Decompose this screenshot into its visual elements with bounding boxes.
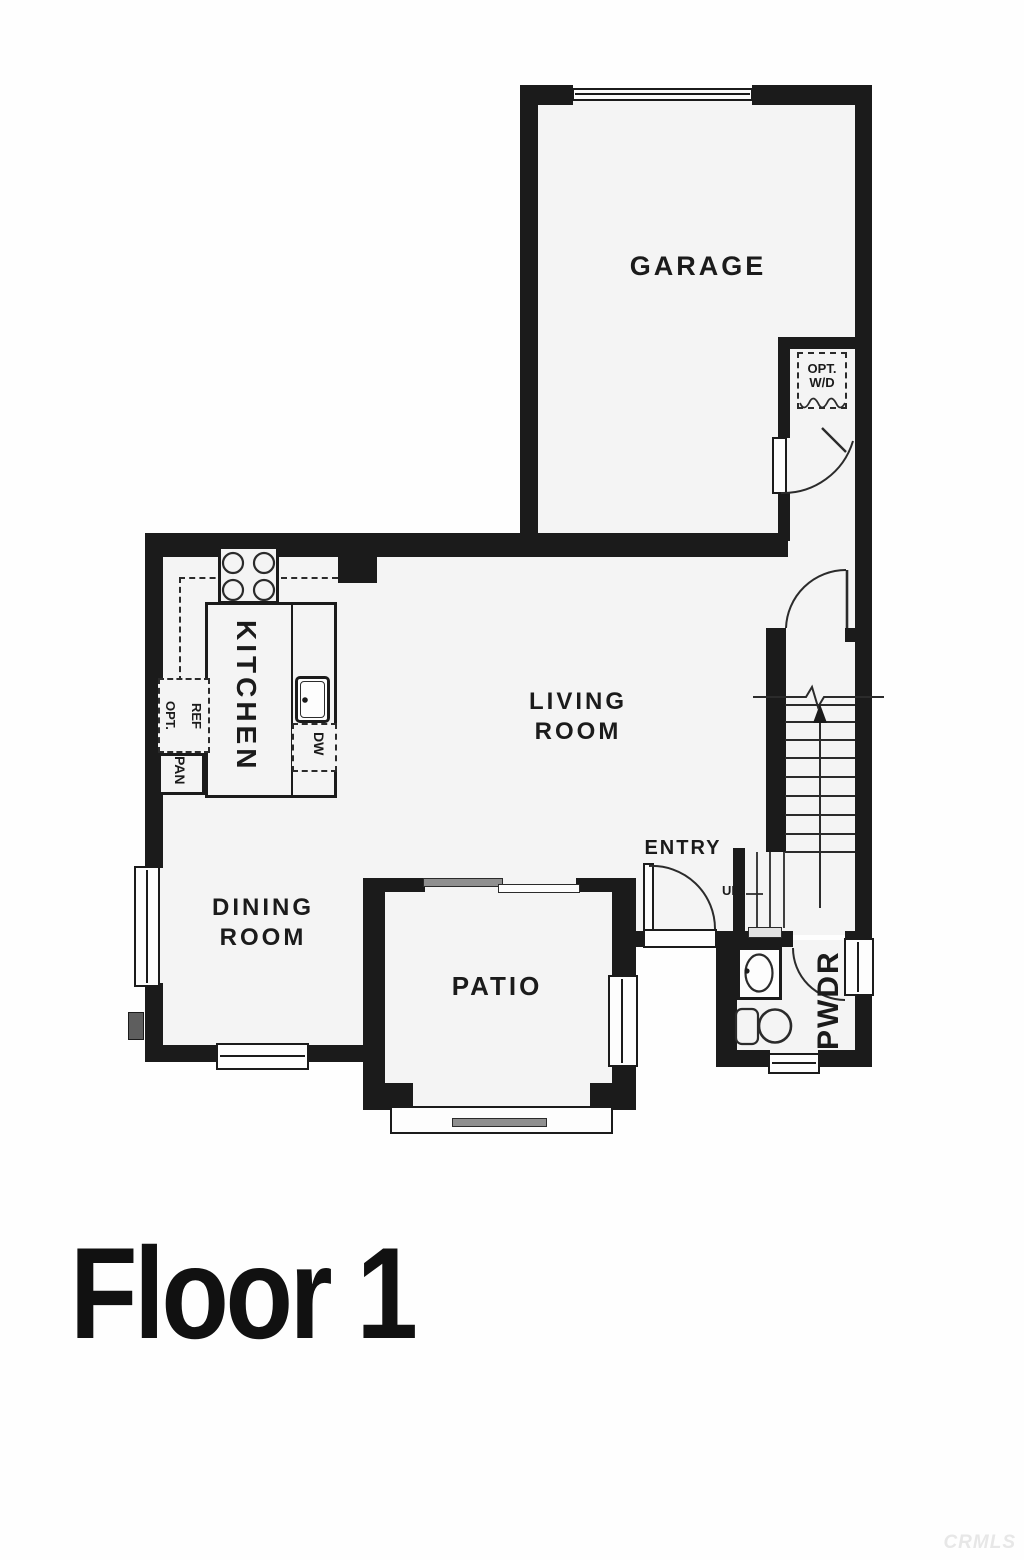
garage-label: GARAGE <box>598 250 798 284</box>
patio-right-wall-upper <box>612 878 636 977</box>
dishwasher-label: DW <box>311 732 327 755</box>
washer-dryer-label-line1: OPT. <box>808 361 837 376</box>
left-outer-wall-lower <box>145 983 163 1047</box>
patio-step-gray <box>452 1118 547 1127</box>
patio-right-window-pane <box>621 979 623 1063</box>
powder-bottom-wall-left <box>716 1050 770 1067</box>
sliding-door-panel-back <box>423 878 503 887</box>
laundry-nook-left-wall <box>778 337 790 438</box>
patio-left-wall <box>363 878 385 1110</box>
front-door-sill <box>643 929 717 948</box>
floor-plan-canvas: GARAGE LIVING ROOM DINING ROOM PATIO ENT… <box>0 0 1024 1560</box>
utility-box-icon <box>128 1012 144 1040</box>
powder-bottom-wall-right <box>818 1050 872 1067</box>
dining-bottom-wall-left <box>145 1045 220 1062</box>
washer-dryer-label: OPT. W/D <box>799 362 845 391</box>
pantry-label: PAN <box>172 756 188 785</box>
refrigerator-label-line2: REF <box>189 703 204 729</box>
patio-right-window <box>608 975 638 1067</box>
dining-bottom-window-pane <box>220 1055 305 1057</box>
sliding-door-panel-front <box>498 884 580 893</box>
dining-left-window-pane <box>146 870 148 983</box>
entry-door-leaf <box>643 863 654 931</box>
garage-top-wall-right <box>752 85 872 105</box>
stair-door-stub <box>845 628 858 642</box>
powder-label: PWDR <box>812 950 846 1050</box>
powder-right-window <box>844 938 874 996</box>
crmls-watermark: CRMLS <box>943 1532 1016 1554</box>
powder-right-window-pane <box>857 942 859 992</box>
powder-vanity <box>737 947 782 1000</box>
dining-floor <box>150 860 385 1050</box>
powder-left-wall <box>716 931 737 1067</box>
living-room-label-line2: ROOM <box>535 718 622 745</box>
stair-left-wall <box>766 628 786 852</box>
dining-room-label-line1: DINING <box>212 894 314 921</box>
kitchen-wall-jog <box>338 545 377 583</box>
stair-first-step <box>748 927 782 938</box>
dining-room-label-line2: ROOM <box>220 924 307 951</box>
page-title: Floor 1 <box>70 1218 415 1368</box>
kitchen-sink-basin <box>300 681 325 718</box>
kitchen-counter-dashed-line-left <box>179 577 181 682</box>
right-outer-wall-upper <box>855 85 872 942</box>
laundry-door-leaf <box>772 437 787 494</box>
laundry-nook-top-wall <box>778 337 872 349</box>
patio-label: PATIO <box>397 970 597 1003</box>
garage-top-wall-left <box>520 85 573 105</box>
patio-top-wall-left <box>363 878 425 892</box>
kitchen-label: KITCHEN <box>230 620 262 772</box>
refrigerator-label-line1: OPT. <box>163 701 178 730</box>
stove-icon <box>218 546 279 604</box>
up-label: UP <box>716 884 746 898</box>
garage-floor <box>528 92 860 545</box>
garage-left-wall <box>520 85 538 557</box>
living-room-label-line1: LIVING <box>529 688 627 715</box>
living-room-label: LIVING ROOM <box>478 687 678 747</box>
powder-bottom-window-pane <box>772 1062 816 1064</box>
garage-door-line <box>575 93 750 95</box>
entry-label: ENTRY <box>613 836 753 861</box>
washer-dryer-label-line2: W/D <box>809 375 834 390</box>
dining-room-label: DINING ROOM <box>163 893 363 953</box>
